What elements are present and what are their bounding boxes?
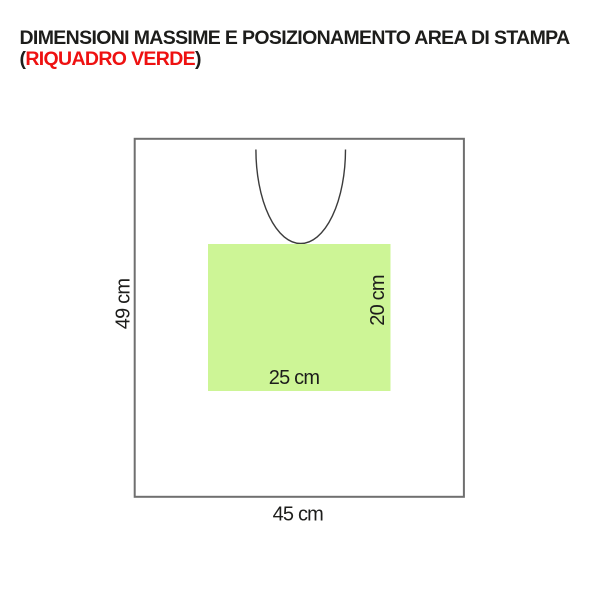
svg-text:49 cm: 49 cm	[113, 279, 135, 330]
svg-text:25 cm: 25 cm	[269, 367, 320, 389]
svg-text:45 cm: 45 cm	[273, 504, 324, 526]
svg-text:20 cm: 20 cm	[367, 275, 389, 326]
